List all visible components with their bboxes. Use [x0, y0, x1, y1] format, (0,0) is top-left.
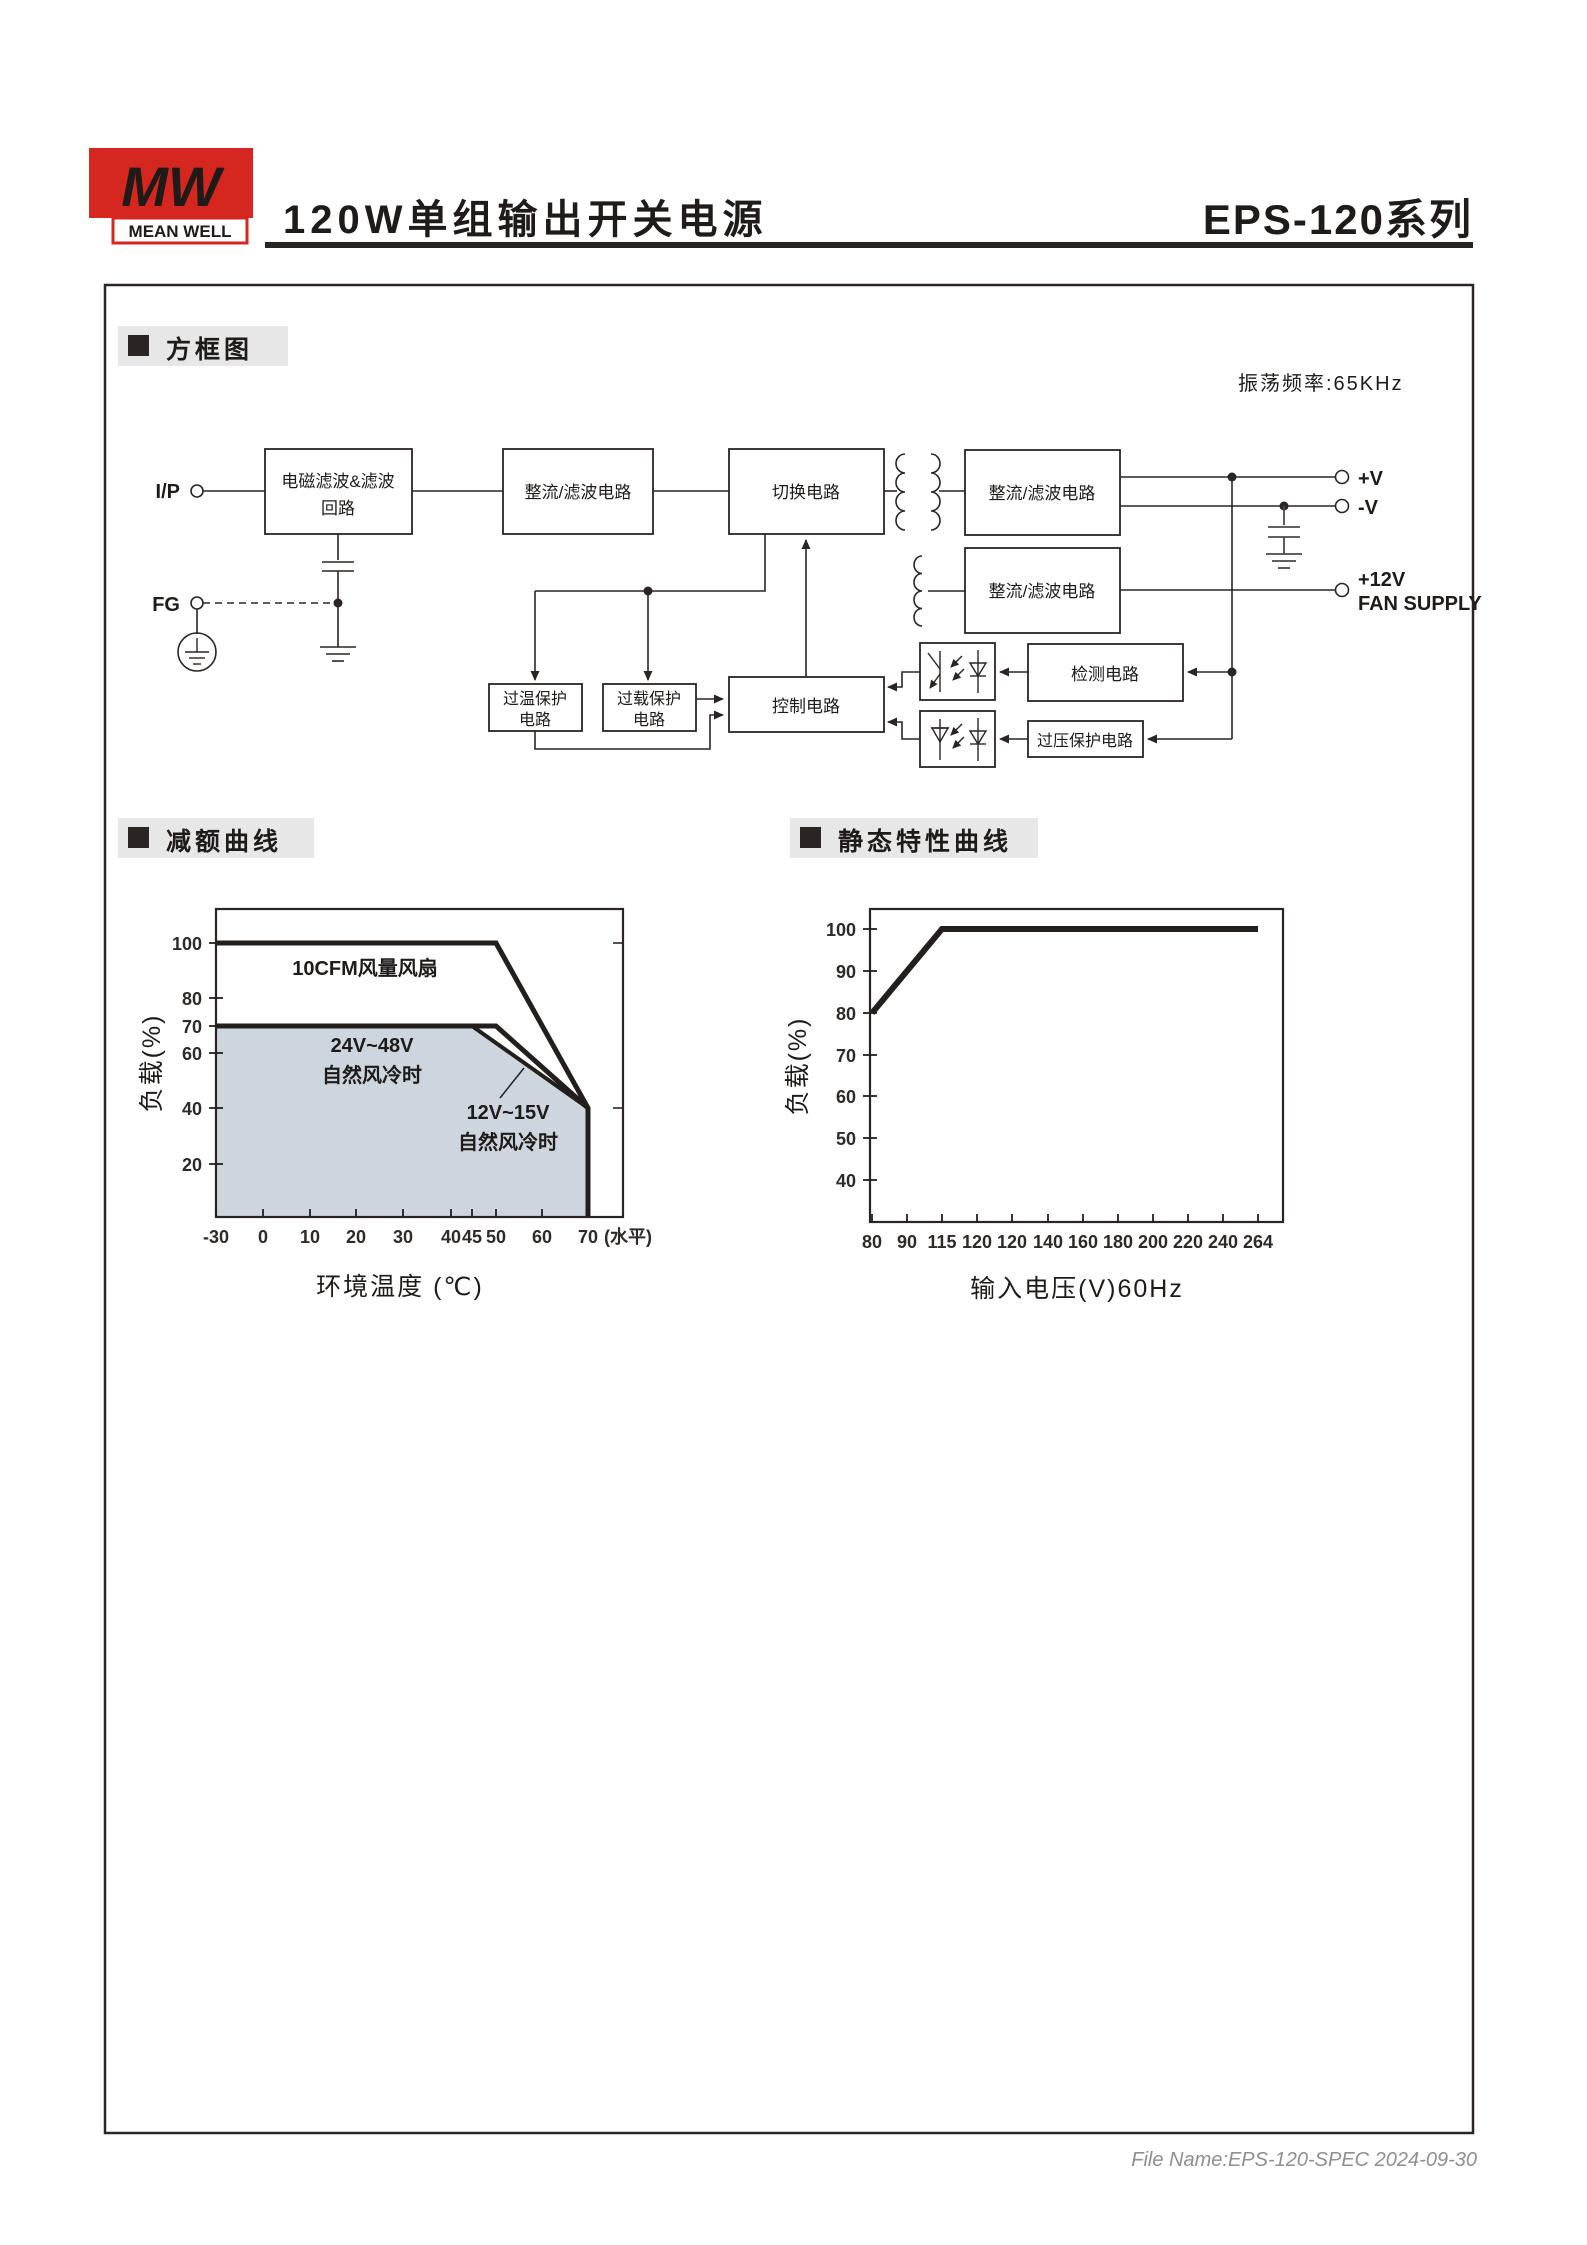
x-tick-label: 50 — [486, 1227, 506, 1247]
datasheet-page: MW MEAN WELL 120W单组输出开关电源 EPS-120系列 方框图 … — [0, 0, 1587, 2245]
y-tick-label: 40 — [836, 1171, 856, 1191]
optocoupler-2-icon — [920, 711, 995, 767]
x-tick-label: 200 — [1138, 1232, 1168, 1252]
y-tick-label: 100 — [172, 934, 202, 954]
x-tick-label: 10 — [300, 1227, 320, 1247]
static-ticks: 8090115120120140160180200220240264100908… — [826, 920, 1273, 1252]
block-emi-filter — [265, 449, 412, 534]
transformer-icon — [884, 454, 965, 626]
block-rectifier-aux-label: 整流/滤波电路 — [989, 582, 1096, 601]
page-canvas: MW MEAN WELL 120W单组输出开关电源 EPS-120系列 方框图 … — [0, 0, 1587, 2245]
optocoupler-1-icon — [920, 643, 995, 700]
section-title-static: 静态特性曲线 — [838, 827, 1012, 856]
y-tick-label: 20 — [182, 1155, 202, 1175]
derating-xlabel: 环境温度 (℃) — [316, 1273, 484, 1301]
x-tick-label: 264 — [1243, 1232, 1273, 1252]
output-capacitor-icon — [1266, 506, 1302, 568]
x-tick-label: 115 — [927, 1232, 956, 1252]
terminal-label-input: I/P — [156, 481, 180, 503]
x-tick-label: 90 — [897, 1232, 917, 1252]
x-tick-label: 140 — [1033, 1232, 1063, 1252]
annotation-12-15v-sub: 自然风冷时 — [458, 1130, 558, 1154]
block-emi-filter-label2: 回路 — [321, 499, 355, 518]
y-capacitor-icon — [322, 534, 354, 603]
section-square-icon — [128, 827, 149, 848]
x-tick-label: 20 — [346, 1227, 366, 1247]
x-tick-label: 30 — [393, 1227, 413, 1247]
static-chart: 8090115120120140160180200220240264100908… — [784, 909, 1283, 1303]
x-tick-label: 120 — [962, 1232, 992, 1252]
section-square-icon — [800, 827, 821, 848]
y-tick-label: 80 — [836, 1004, 856, 1024]
vaux-terminal-icon — [1336, 584, 1349, 597]
y-tick-label: 50 — [836, 1129, 856, 1149]
logo-mw-icon: MW — [121, 155, 225, 218]
vpos-terminal-icon — [1336, 471, 1349, 484]
y-tick-label: 100 — [826, 920, 856, 940]
y-tick-label: 80 — [182, 989, 202, 1009]
static-plot-frame — [870, 909, 1283, 1222]
block-switching-label: 切换电路 — [772, 483, 840, 502]
block-otp-label2: 电路 — [519, 711, 551, 729]
block-detection-label: 检测电路 — [1071, 665, 1139, 684]
x-tick-label: 60 — [532, 1227, 552, 1247]
x-tick-label: 120 — [997, 1232, 1027, 1252]
block-rectifier-main-label: 整流/滤波电路 — [989, 484, 1096, 503]
earth-ground-icon — [178, 609, 216, 671]
annotation-24-48v: 24V~48V — [331, 1035, 415, 1057]
x-tick-label: 180 — [1103, 1232, 1133, 1252]
annotation-24-48v-sub: 自然风冷时 — [322, 1063, 422, 1087]
y-tick-label: 60 — [182, 1044, 202, 1064]
section-title-derating: 减额曲线 — [166, 827, 282, 856]
block-diagram: I/P 电磁滤波&滤波 回路 整流/滤波电路 切换电路 整流/滤波电路 整流/滤… — [152, 449, 1482, 767]
block-olp-label2: 电路 — [633, 711, 665, 729]
x-tick-label: 160 — [1068, 1232, 1098, 1252]
x-tick-label: 80 — [862, 1232, 882, 1252]
static-ylabel: 负载(%) — [784, 1017, 812, 1116]
y-tick-label: 90 — [836, 962, 856, 982]
input-terminal-icon — [191, 485, 203, 497]
x-tick-label: 240 — [1208, 1232, 1238, 1252]
terminal-label-fan-supply: FAN SUPPLY — [1358, 593, 1482, 615]
terminal-label-fg: FG — [152, 594, 180, 616]
section-square-icon — [128, 335, 149, 356]
x-tick-label: 220 — [1173, 1232, 1203, 1252]
block-ovp-label: 过压保护电路 — [1037, 732, 1133, 750]
annotation-12-15v: 12V~15V — [467, 1102, 551, 1124]
y-tick-label: 70 — [182, 1017, 202, 1037]
vneg-terminal-icon — [1336, 500, 1349, 513]
x-tick-label: 70 — [578, 1227, 598, 1247]
block-olp-label: 过载保护 — [617, 690, 681, 708]
terminal-label-vpos: +V — [1358, 468, 1384, 490]
x-tick-label: 0 — [258, 1227, 268, 1247]
osc-frequency-label: 振荡频率:65KHz — [1238, 372, 1404, 395]
block-otp-label: 过温保护 — [503, 690, 567, 708]
y-tick-label: 40 — [182, 1099, 202, 1119]
section-static: 静态特性曲线 — [790, 818, 1038, 858]
x-axis-note: (水平) — [604, 1226, 652, 1247]
section-title-block-diagram: 方框图 — [166, 335, 253, 364]
derating-chart: -30010203040455060701008070604020 10CFM风… — [138, 909, 652, 1301]
block-rectifier-input-label: 整流/滤波电路 — [525, 483, 632, 502]
series-title: EPS-120系列 — [1203, 196, 1473, 243]
y-tick-label: 70 — [836, 1046, 856, 1066]
static-chart-data — [872, 929, 1258, 1013]
derating-ylabel: 负载(%) — [138, 1014, 166, 1113]
block-emi-filter-label: 电磁滤波&滤波 — [281, 472, 394, 491]
header-rule — [265, 242, 1473, 248]
logo-brand-text: MEAN WELL — [129, 222, 232, 241]
block-control-label: 控制电路 — [772, 697, 840, 716]
header: MW MEAN WELL 120W单组输出开关电源 EPS-120系列 — [89, 148, 1473, 248]
static-xlabel: 输入电压(V)60Hz — [970, 1275, 1184, 1303]
x-tick-label: 45 — [462, 1227, 482, 1247]
fg-terminal-icon — [191, 597, 203, 609]
page-title: 120W单组输出开关电源 — [283, 198, 768, 242]
terminal-label-vaux: +12V — [1358, 569, 1406, 591]
footer-filename: File Name:EPS-120-SPEC 2024-09-30 — [1131, 2149, 1477, 2171]
terminal-label-vneg: -V — [1358, 497, 1379, 519]
y-tick-label: 60 — [836, 1087, 856, 1107]
x-tick-label: -30 — [203, 1227, 229, 1247]
static-curve — [872, 929, 1258, 1013]
section-derating: 减额曲线 — [118, 818, 314, 858]
x-tick-label: 40 — [441, 1227, 461, 1247]
section-block-diagram: 方框图 振荡频率:65KHz — [118, 326, 1404, 395]
chassis-ground-icon — [320, 603, 356, 661]
annotation-fan: 10CFM风量风扇 — [292, 956, 438, 980]
